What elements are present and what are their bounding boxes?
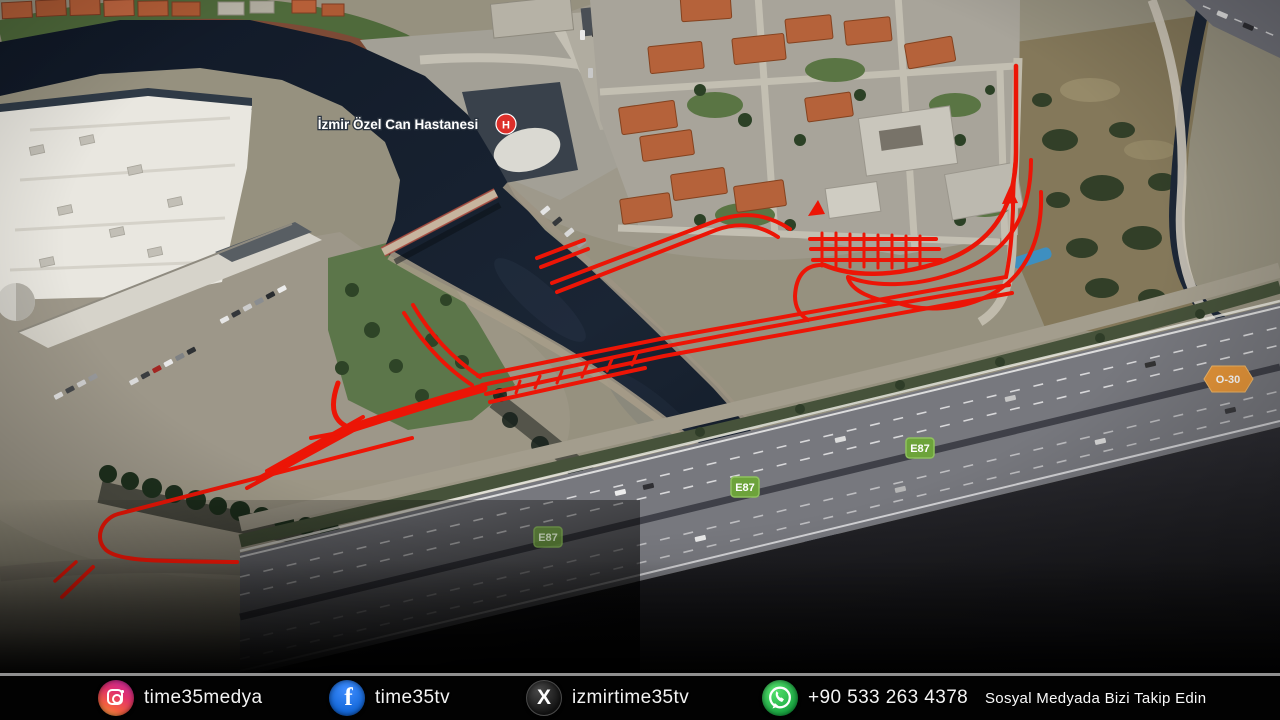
social-item-instagram: time35medya — [98, 676, 262, 720]
social-item-x: izmirtime35tv — [526, 676, 689, 720]
follow-us-text: Sosyal Medyada Bizi Takip Edin — [985, 676, 1206, 720]
bottom-fade — [0, 560, 1280, 676]
facebook-handle: time35tv — [375, 687, 450, 709]
social-item-whatsapp: +90 533 263 4378 — [762, 676, 968, 720]
whatsapp-number: +90 533 263 4378 — [808, 687, 968, 709]
whatsapp-icon — [762, 680, 798, 716]
x-handle: izmirtime35tv — [572, 687, 689, 709]
instagram-handle: time35medya — [144, 687, 262, 709]
facebook-icon — [329, 680, 365, 716]
x-icon — [526, 680, 562, 716]
satellite-map: E87 E87 E87 O-30 — [0, 0, 1280, 676]
video-frame: E87 E87 E87 O-30 — [0, 0, 1280, 720]
social-item-facebook: time35tv — [329, 676, 450, 720]
instagram-icon — [98, 680, 134, 716]
social-bar: time35medya time35tv izmirtime35tv +90 5… — [0, 673, 1280, 720]
